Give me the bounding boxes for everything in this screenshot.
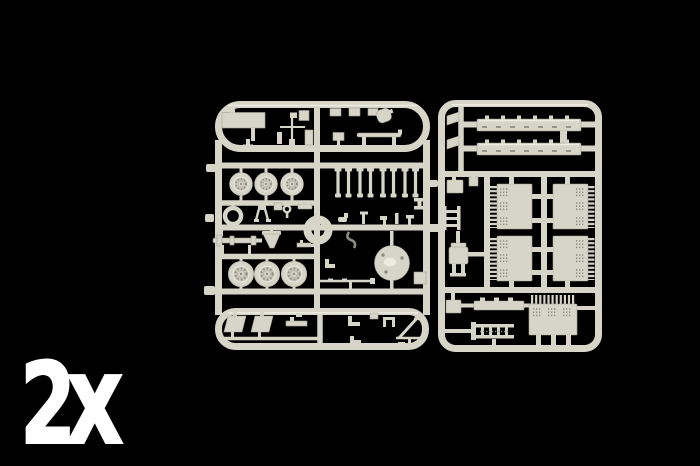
suspension-posts <box>335 168 420 198</box>
mudguards <box>224 312 273 339</box>
gate-tab <box>429 180 438 187</box>
side-plate <box>414 272 426 284</box>
ladder-frame <box>445 322 514 346</box>
small-box-part <box>299 111 309 121</box>
driver-seat <box>449 231 487 277</box>
tow-funnel <box>262 228 281 249</box>
gate-tab <box>204 286 215 295</box>
right-sprue <box>442 104 599 349</box>
step-ladder <box>443 206 461 230</box>
tread-plates <box>462 116 595 156</box>
levers-and-pedals <box>338 212 414 226</box>
road-wheels-row-1 <box>230 167 304 202</box>
small-block <box>274 203 282 210</box>
gate-tab <box>205 214 214 222</box>
spare-tyre-ring <box>225 204 241 224</box>
box-with-stem <box>333 133 344 146</box>
stowage-boxes <box>330 108 378 116</box>
product-photo: 2 x <box>0 0 700 466</box>
running-board-part <box>357 130 402 146</box>
radiator-grille <box>529 300 595 347</box>
road-wheels-row-2 <box>229 258 307 290</box>
angle-bracket-a <box>325 259 335 268</box>
turret-base-disc <box>375 231 410 292</box>
flat-strip <box>461 298 536 311</box>
tripod-bracket <box>254 205 271 222</box>
bottom-brackets <box>348 313 405 346</box>
quantity-times: x <box>66 339 124 463</box>
hull-plate-part <box>222 108 265 142</box>
tow-hook <box>347 232 355 248</box>
quantity-label: 2 x <box>20 339 124 463</box>
gate-tab <box>206 164 216 172</box>
left-sprue <box>204 105 438 347</box>
small-box-c <box>446 293 461 313</box>
eye-bolt <box>284 206 290 218</box>
